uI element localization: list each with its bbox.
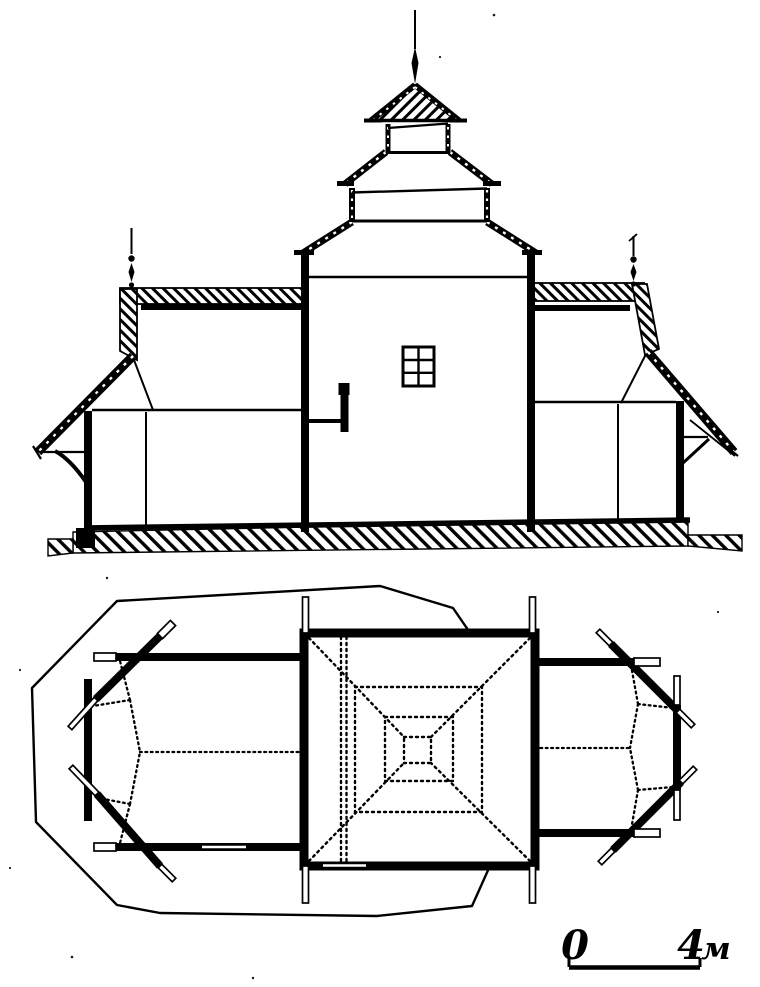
lantern-wall-notches <box>388 127 448 151</box>
left-console-curve <box>55 451 86 482</box>
tier2-top-line <box>352 189 487 193</box>
right-console-brace <box>683 439 709 463</box>
right-finial <box>629 234 637 287</box>
tier2-slope-right <box>450 152 492 184</box>
left-wing-cornice-corner <box>120 289 137 360</box>
ground-right-step <box>688 535 742 551</box>
left-wing-outer-wall <box>84 411 92 531</box>
scale-bar: 0 4 м <box>561 922 731 969</box>
left-wing-rafter <box>134 360 153 410</box>
ground-left-step <box>48 539 73 556</box>
right-wing-cornice-corner <box>632 284 659 355</box>
central-spire <box>412 10 419 84</box>
west-wing-roof-hips-dotted <box>93 661 303 843</box>
plan-nave-square <box>303 597 536 903</box>
right-wing-rafter <box>621 354 646 403</box>
church-drawing-page: 0 4 м <box>0 0 760 987</box>
left-wing-cornice-band <box>120 288 303 304</box>
tower-left-wall <box>301 252 309 532</box>
scale-unit-label: м <box>701 931 730 967</box>
tower-window <box>403 347 434 386</box>
right-wing-cornice-band <box>534 283 644 301</box>
plan-view <box>32 586 697 916</box>
left-wing-section <box>33 228 303 531</box>
tower-right-wall <box>527 252 535 532</box>
tier3-slope-notches <box>303 222 536 253</box>
right-wing-outer-wall <box>676 401 684 518</box>
plan-east-wing <box>535 629 697 865</box>
church-drawing-figure: 0 4 м <box>0 0 760 987</box>
left-finial <box>128 228 134 288</box>
pyramid-cap <box>364 85 467 121</box>
ground <box>48 519 742 556</box>
east-wing-ne-wall <box>611 644 678 711</box>
central-tower <box>294 10 542 532</box>
tier2-slope-left <box>345 152 386 184</box>
tier2-band-notches <box>352 190 487 220</box>
scale-zero-label: 0 <box>561 922 589 969</box>
lantern-top-line <box>388 124 448 129</box>
section-view <box>33 10 742 556</box>
right-wing-section <box>534 234 738 524</box>
plan-west-wing <box>68 620 304 881</box>
east-wing-se-wall <box>613 782 681 850</box>
